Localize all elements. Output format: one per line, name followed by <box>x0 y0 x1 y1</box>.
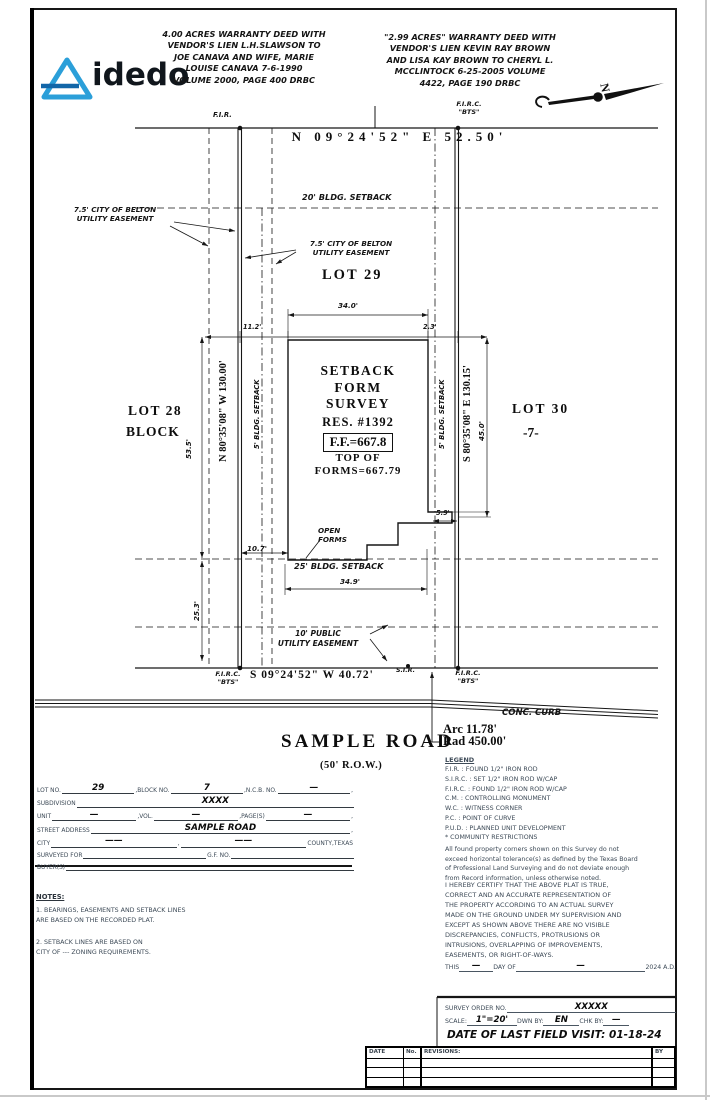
form-row-unit: UNIT—,VOL.—,PAGE(S)—, <box>36 811 354 821</box>
dim-25-3: 25.3' <box>192 601 201 621</box>
form-value: 29 <box>62 784 135 794</box>
dim-5-9: 5.9' <box>436 509 450 518</box>
dim-2-3: 2.3' <box>423 323 437 332</box>
top-of-forms: TOP OF FORMS=667.79 <box>300 452 416 478</box>
dim-53-5: 53.5' <box>184 439 193 459</box>
form-value: SAMPLE ROAD <box>91 824 350 834</box>
survey-sheet: idedo 4.00 ACRES WARRANTY DEED WITH VEND… <box>0 0 710 1100</box>
revision-header-no: No. <box>403 1048 420 1058</box>
revision-cell <box>651 1067 674 1077</box>
setback-20-label: 20' BLDG. SETBACK <box>302 192 391 203</box>
note-2: 2. SETBACK LINES ARE BASED ON CITY OF --… <box>36 938 151 958</box>
aidedo-logo-icon <box>38 50 96 102</box>
revision-header-revisions: REVISIONS: <box>420 1048 651 1058</box>
form-row-subdivision: SUBDIVISIONXXXX <box>36 797 354 807</box>
open-forms-label: OPEN FORMS <box>318 526 347 545</box>
easement-label-right: 7.5' CITY OF BELTON UTILITY EASEMENT <box>298 239 404 258</box>
dwn-by-value: EN <box>543 1016 579 1026</box>
revision-cell <box>367 1067 403 1077</box>
revision-header-date: DATE <box>367 1048 403 1058</box>
legend-title: LEGEND <box>445 755 474 765</box>
conc-curb-label: CONC. CURB <box>502 708 561 719</box>
revision-header-by: BY <box>651 1048 674 1058</box>
easement-label-left: 7.5' CITY OF BELTON UTILITY EASEMENT <box>56 205 174 224</box>
fir-label-top: F.I.R. <box>213 111 232 120</box>
setback-5-label-right: 5' BLDG. SETBACK <box>438 379 447 449</box>
firc-label-top: F.I.R.C. "BTS" <box>446 100 492 116</box>
revision-cell <box>651 1058 674 1068</box>
form-value <box>83 858 206 859</box>
form-label: G.F. NO. <box>206 853 231 859</box>
form-value: —— <box>181 837 307 847</box>
scale-row: SCALE: 1"=20' DWN BY: EN CHK BY: — <box>445 1016 676 1026</box>
form-value: 7 <box>171 784 244 794</box>
form-row-city: CITY——,——COUNTY,TEXAS <box>36 837 354 847</box>
firc-label-bottom-right: F.I.R.C. "BTS" <box>446 669 490 685</box>
scale-label: SCALE: <box>445 1018 467 1025</box>
firc-label-bottom-left: F.I.R.C. "BTS" <box>206 670 250 686</box>
certification-text: I HEREBY CERTIFY THAT THE ABOVE PLAT IS … <box>445 880 621 960</box>
chk-by-value: — <box>603 1016 629 1026</box>
north-arrow-icon <box>534 76 668 114</box>
field-visit-date: DATE OF LAST FIELD VISIT: 01-18-24 <box>447 1029 662 1043</box>
form-row-street: STREET ADDRESSSAMPLE ROAD, <box>36 824 354 834</box>
form-label: CITY <box>36 841 51 847</box>
survey-order-row: SURVEY ORDER NO. XXXXX <box>445 1003 676 1013</box>
form-label: , <box>350 788 354 794</box>
form-label: ,N.C.B. NO. <box>243 788 278 794</box>
lot-29-label: LOT 29 <box>322 266 382 285</box>
dim-34-9: 34.9' <box>340 577 360 586</box>
deed-note-left: 4.00 ACRES WARRANTY DEED WITH VENDOR'S L… <box>130 29 358 86</box>
revision-cell <box>403 1058 420 1068</box>
date-line-dayof: DAY OF <box>493 964 516 971</box>
revision-table: DATE No. REVISIONS: BY <box>365 1046 676 1088</box>
notes-title: NOTES: <box>36 892 64 903</box>
form-value <box>231 858 354 859</box>
ff-box: F.F.=667.8 <box>300 431 416 452</box>
bearing-left: N 80°35'08" W 130.00' <box>217 360 231 462</box>
page-edge-right <box>705 0 707 1100</box>
revision-cell <box>420 1058 651 1068</box>
ff-value: F.F.=667.8 <box>323 433 394 452</box>
form-row-surveyed: SURVEYED FORG.F. NO. <box>36 851 354 860</box>
survey-order-label: SURVEY ORDER NO. <box>445 1005 507 1012</box>
date-line-year: 2024 A.D. <box>645 964 676 971</box>
revision-cell <box>420 1067 651 1077</box>
tolerance-note: All found property corners shown on this… <box>445 845 638 883</box>
form-label: STREET ADDRESS <box>36 828 91 834</box>
revision-cell <box>403 1067 420 1077</box>
dim-34-0: 34.0' <box>338 301 358 310</box>
form-label: , <box>350 814 354 820</box>
form-block: LOT NO.29,BLOCK NO.7,N.C.B. NO.—, SUBDIV… <box>36 784 354 874</box>
form-label: SURVEYED FOR <box>36 853 83 859</box>
form-label: ,BLOCK NO. <box>134 788 170 794</box>
lot-30-label: LOT 30 <box>512 400 569 418</box>
form-label: ,PAGE(S) <box>238 814 266 820</box>
bearing-right: S 80°35'08" E 130.15' <box>461 365 475 462</box>
dim-10-7: 10.7' <box>247 544 267 553</box>
form-row-lot: LOT NO.29,BLOCK NO.7,N.C.B. NO.—, <box>36 784 354 794</box>
form-value: — <box>278 784 351 794</box>
form-row-buyers: BUYER(S) <box>36 863 354 872</box>
revision-cell <box>367 1077 403 1087</box>
survey-title: SETBACK FORM SURVEY <box>300 363 416 413</box>
date-line-this: THIS <box>445 964 459 971</box>
dim-45-0: 45.0' <box>477 421 486 441</box>
form-value: — <box>52 811 136 821</box>
pue-label: 10' PUBLIC UTILITY EASEMENT <box>268 629 368 649</box>
lot-28-label: LOT 28 <box>128 402 182 420</box>
form-label: BUYER(S) <box>36 865 66 871</box>
revision-cell <box>420 1077 651 1087</box>
date-line-blank1: — <box>459 962 493 972</box>
scale-value: 1"=20' <box>467 1016 517 1026</box>
res-number: RES. #1392 <box>300 414 416 430</box>
form-label: SUBDIVISION <box>36 801 77 807</box>
legend-lines: F.I.R. : FOUND 1/2" IRON ROD S.I.R.C. : … <box>445 765 567 843</box>
form-value: —— <box>51 837 177 847</box>
date-line-blank2: — <box>516 962 646 972</box>
block-7-label: -7- <box>523 424 539 442</box>
chk-by-label: CHK BY: <box>579 1018 603 1025</box>
form-label: LOT NO. <box>36 788 62 794</box>
form-value: XXXX <box>77 797 354 807</box>
form-value: — <box>154 811 238 821</box>
note-1: 1. BEARINGS, EASEMENTS AND SETBACK LINES… <box>36 906 185 926</box>
page-edge-bottom <box>0 1095 710 1097</box>
setback-25-label: 25' BLDG. SETBACK <box>294 561 383 572</box>
revision-cell <box>403 1077 420 1087</box>
date-line: THIS — DAY OF — 2024 A.D. <box>445 962 676 972</box>
block-label: BLOCK <box>126 423 180 441</box>
road-name: SAMPLE ROAD <box>281 730 454 755</box>
form-value: — <box>266 811 350 821</box>
sir-label: S.I.R. <box>396 667 415 675</box>
revision-cell <box>367 1058 403 1068</box>
survey-order-value: XXXXX <box>507 1003 676 1013</box>
bearing-top: N 09°24'52" E 52.50' <box>262 129 537 146</box>
dim-11-2: 11.2' <box>243 323 261 332</box>
revision-cell <box>651 1077 674 1087</box>
form-label: , <box>350 828 354 834</box>
row-label: (50' R.O.W.) <box>320 759 382 773</box>
form-value <box>66 870 354 871</box>
form-label: COUNTY,TEXAS <box>306 841 354 847</box>
setback-5-label-left: 5' BLDG. SETBACK <box>253 379 262 449</box>
dwn-by-label: DWN BY: <box>517 1018 543 1025</box>
form-label: UNIT <box>36 814 52 820</box>
form-label: ,VOL. <box>136 814 154 820</box>
bearing-bottom: S 09°24'52" W 40.72' <box>250 668 374 683</box>
